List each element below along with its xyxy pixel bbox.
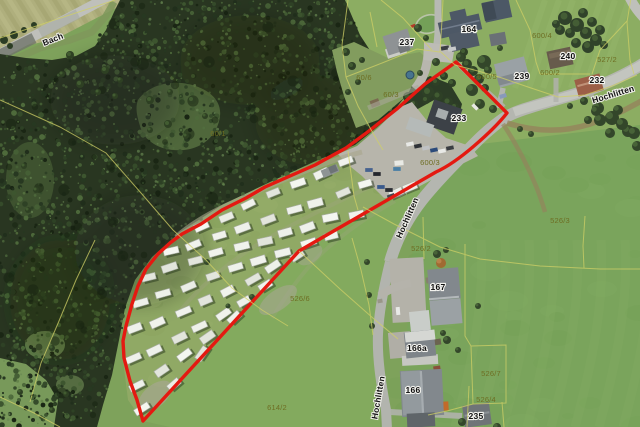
svg-text:600/3: 600/3: [420, 158, 440, 167]
svg-text:240: 240: [560, 51, 575, 61]
svg-text:526/2: 526/2: [411, 244, 431, 253]
svg-text:232: 232: [589, 75, 604, 85]
svg-text:239: 239: [514, 71, 529, 81]
svg-text:526/7: 526/7: [481, 369, 501, 378]
svg-text:235: 235: [468, 411, 483, 421]
svg-text:60/1: 60/1: [210, 129, 225, 138]
svg-text:526/6: 526/6: [290, 294, 310, 303]
svg-text:166a: 166a: [407, 343, 427, 353]
svg-text:526/3: 526/3: [550, 216, 570, 225]
svg-text:167: 167: [430, 282, 445, 292]
svg-text:60/3: 60/3: [383, 90, 398, 99]
svg-text:526/4: 526/4: [476, 395, 496, 404]
svg-text:600/5: 600/5: [477, 72, 497, 81]
svg-text:600/4: 600/4: [532, 31, 552, 40]
svg-text:60/6: 60/6: [356, 73, 371, 82]
svg-text:527/2: 527/2: [597, 55, 617, 64]
svg-text:233: 233: [451, 113, 466, 123]
svg-text:166: 166: [405, 385, 420, 395]
svg-text:614/2: 614/2: [267, 403, 287, 412]
svg-text:164: 164: [461, 24, 476, 34]
svg-text:237: 237: [399, 37, 414, 47]
svg-text:600/2: 600/2: [540, 68, 560, 77]
